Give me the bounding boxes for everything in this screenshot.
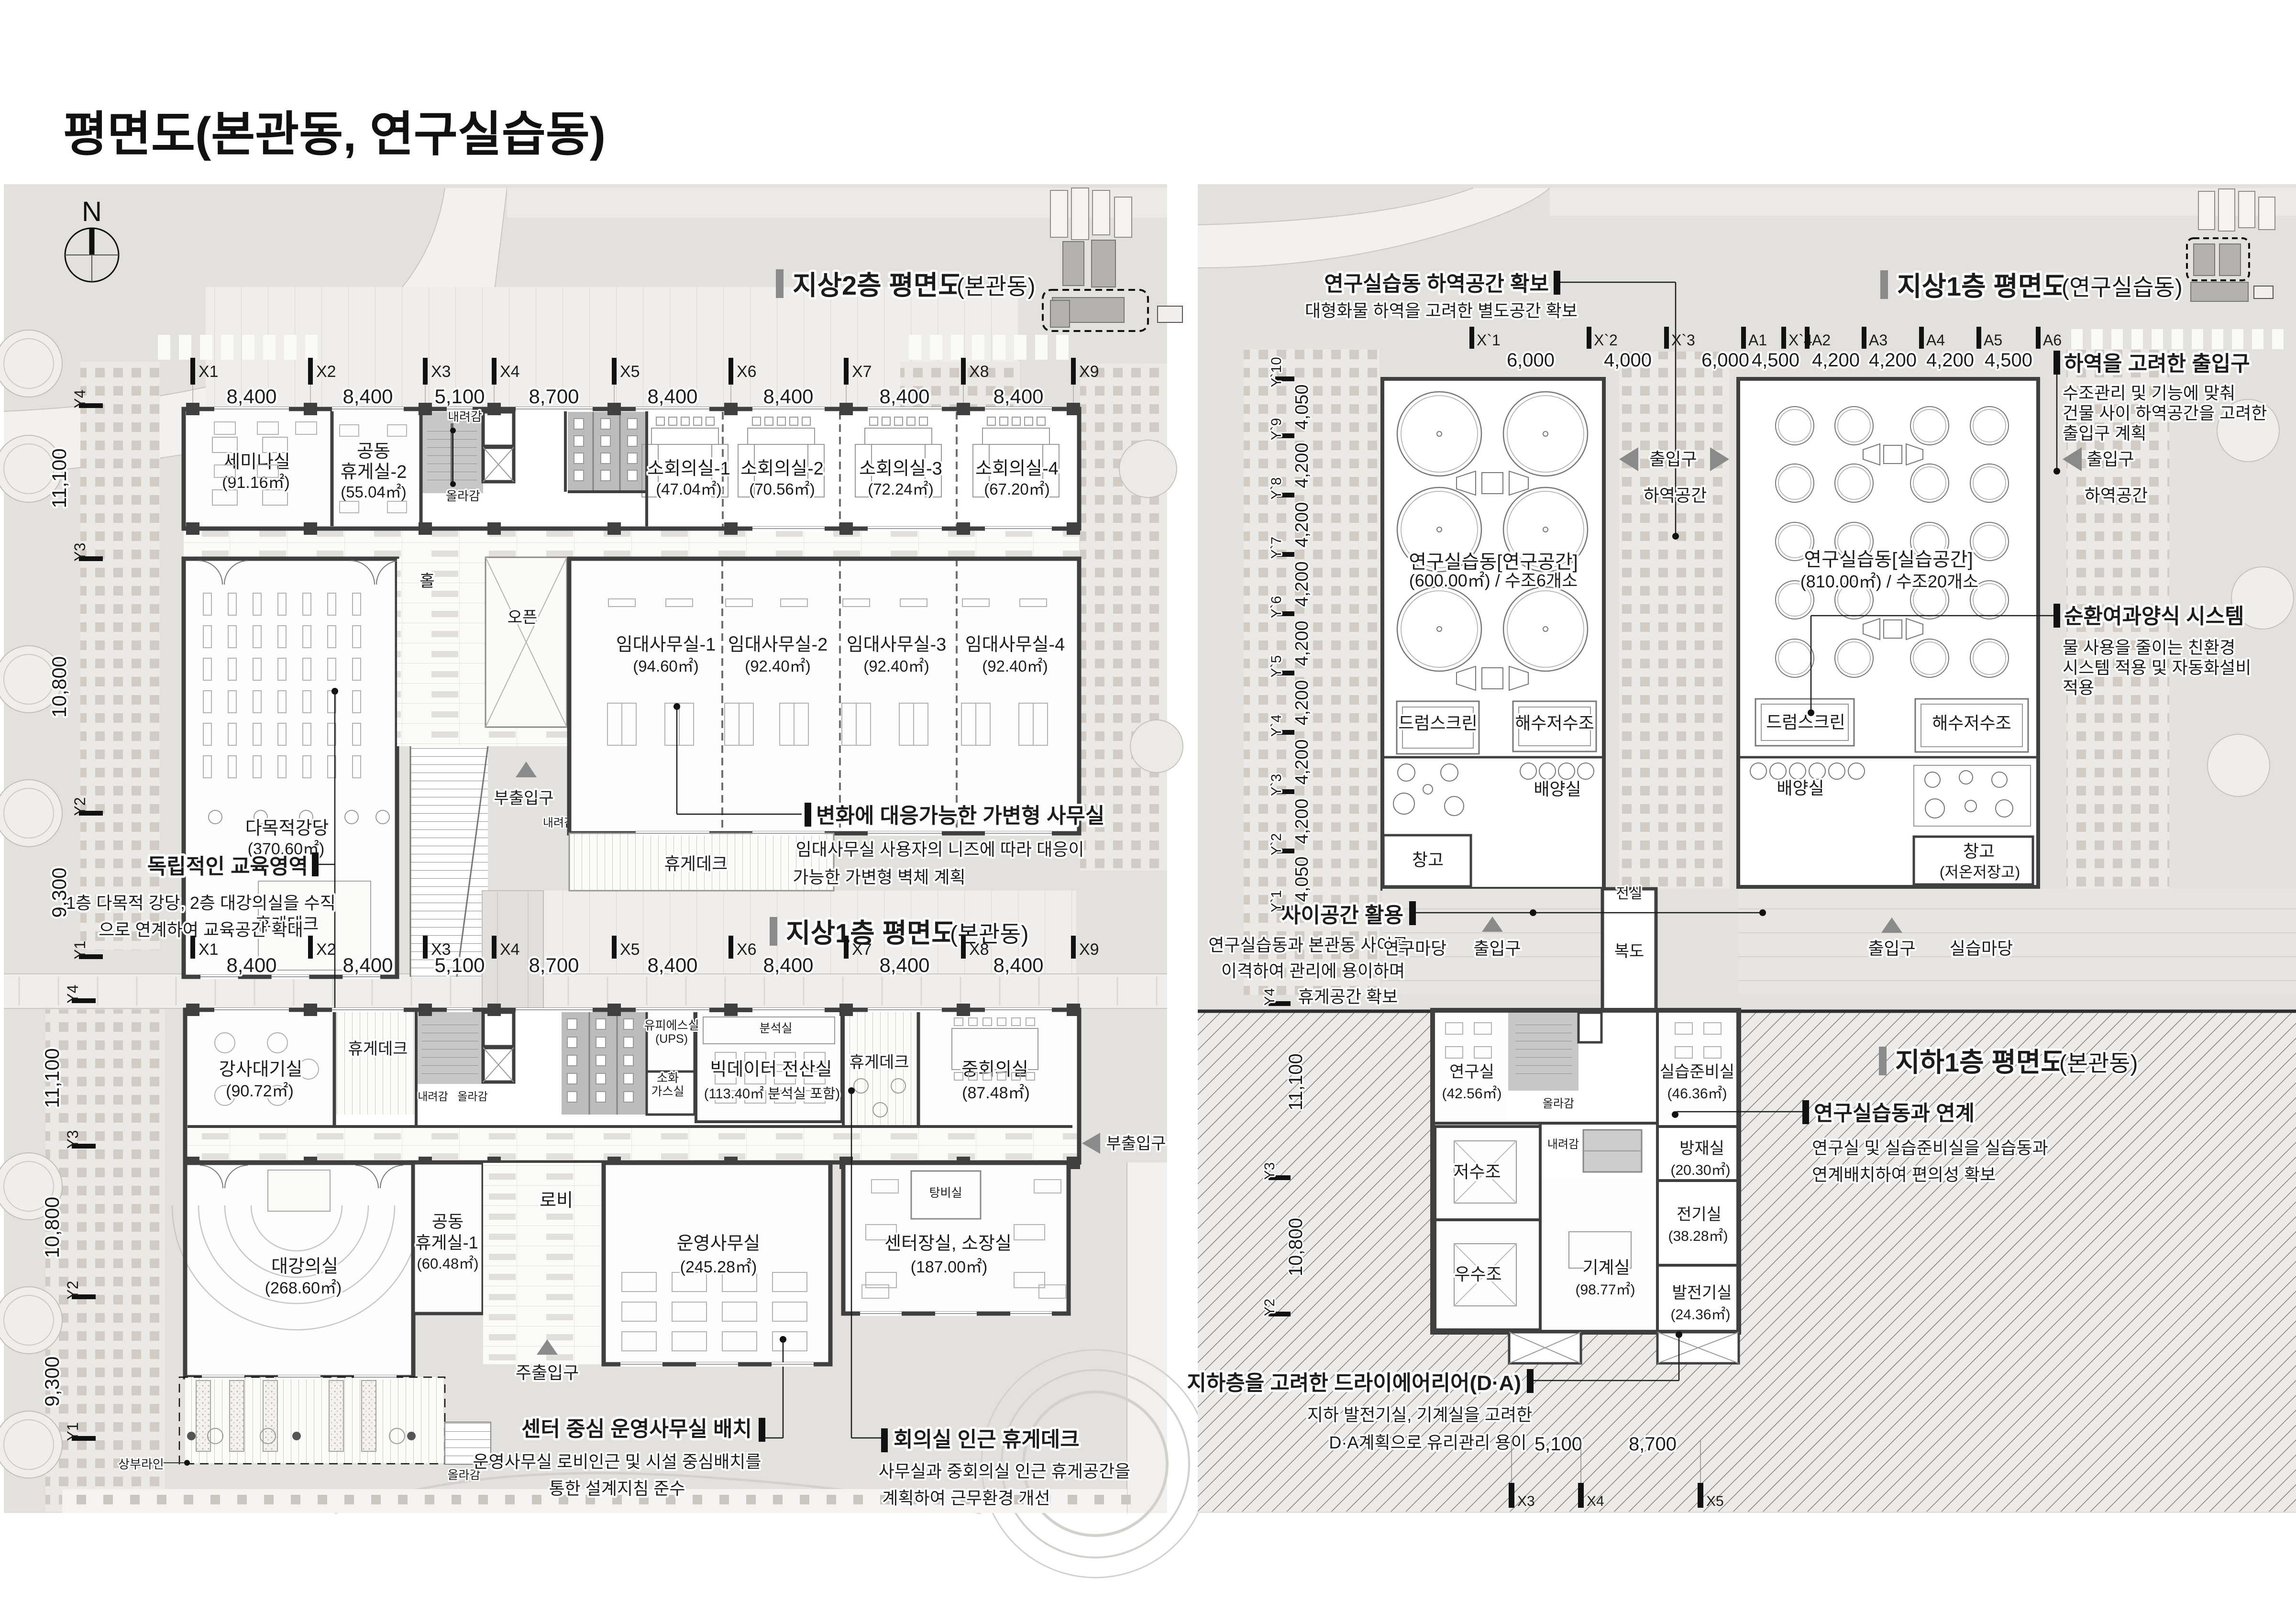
svg-text:건물 사이 하역공간을 고려한: 건물 사이 하역공간을 고려한 [2063, 403, 2267, 423]
svg-text:우수조: 우수조 [1454, 1264, 1501, 1284]
svg-text:(90.72㎡): (90.72㎡) [226, 1082, 294, 1100]
svg-text:빅데이터 전산실: 빅데이터 전산실 [710, 1060, 832, 1080]
svg-text:11,100: 11,100 [41, 1048, 63, 1108]
svg-text:배양실: 배양실 [1777, 778, 1824, 798]
svg-text:(본관동): (본관동) [2059, 1051, 2138, 1076]
svg-text:연구실: 연구실 [1449, 1063, 1494, 1081]
svg-text:X2: X2 [316, 940, 336, 959]
svg-text:대형화물 하역을 고려한 별도공간 확보: 대형화물 하역을 고려한 별도공간 확보 [1305, 301, 1578, 320]
svg-text:휴게데크: 휴게데크 [849, 1053, 909, 1072]
svg-text:Y`7: Y`7 [1269, 537, 1284, 559]
svg-text:(810.00㎡) / 수조20개소: (810.00㎡) / 수조20개소 [1800, 572, 1979, 591]
svg-text:4,200: 4,200 [1292, 561, 1312, 607]
svg-text:8,400: 8,400 [342, 954, 393, 976]
svg-text:운영사무실: 운영사무실 [677, 1234, 761, 1254]
svg-text:창고: 창고 [1963, 841, 1995, 861]
svg-text:계획하여 근무환경 개선: 계획하여 근무환경 개선 [882, 1488, 1050, 1508]
svg-text:X1: X1 [199, 363, 219, 381]
svg-text:A1: A1 [1748, 331, 1767, 349]
svg-text:복도: 복도 [1614, 942, 1645, 961]
svg-text:9,300: 9,300 [41, 1356, 63, 1406]
svg-text:8,400: 8,400 [647, 385, 697, 408]
svg-text:10,800: 10,800 [48, 656, 70, 718]
svg-text:(38.28㎡): (38.28㎡) [1668, 1228, 1728, 1244]
svg-text:연구실습동과 본관동 사이를: 연구실습동과 본관동 사이를 [1208, 935, 1408, 955]
svg-text:변화에 대응가능한 가변형 사무실: 변화에 대응가능한 가변형 사무실 [816, 804, 1104, 828]
svg-text:로비: 로비 [540, 1191, 573, 1211]
svg-text:연구실습동과 연계: 연구실습동과 연계 [1814, 1102, 1975, 1125]
svg-text:X`2: X`2 [1594, 331, 1618, 349]
svg-text:4,500: 4,500 [1985, 350, 2032, 371]
svg-text:저수조: 저수조 [1453, 1162, 1501, 1182]
svg-text:X2: X2 [316, 363, 336, 381]
svg-text:배양실: 배양실 [1534, 779, 1581, 799]
svg-text:4,200: 4,200 [1292, 442, 1312, 488]
svg-text:A6: A6 [2043, 331, 2062, 349]
svg-text:1층 다목적 강당, 2층 대강의실을 수직: 1층 다목적 강당, 2층 대강의실을 수직 [66, 893, 336, 913]
svg-text:출입구: 출입구 [1868, 939, 1915, 958]
svg-text:가능한 가변형 벽체 계획: 가능한 가변형 벽체 계획 [793, 867, 965, 887]
svg-text:수조관리 및 기능에 맞춰: 수조관리 및 기능에 맞춰 [2063, 383, 2235, 403]
svg-text:대강의실: 대강의실 [271, 1257, 338, 1277]
svg-text:출입구: 출입구 [1473, 939, 1521, 958]
svg-text:4,200: 4,200 [1292, 680, 1312, 725]
svg-text:Y`4: Y`4 [1269, 715, 1284, 737]
svg-text:상부라인: 상부라인 [118, 1457, 164, 1471]
svg-text:11,100: 11,100 [48, 448, 70, 508]
svg-text:휴게데크: 휴게데크 [348, 1040, 408, 1058]
svg-text:드럼스크린: 드럼스크린 [1398, 713, 1478, 733]
svg-text:Y1: Y1 [64, 1422, 81, 1441]
svg-text:임대사무실 사용자의 니즈에 따라 대응이: 임대사무실 사용자의 니즈에 따라 대응이 [795, 840, 1084, 859]
svg-text:사무실과 중회의실 인근 휴게공간을: 사무실과 중회의실 인근 휴게공간을 [879, 1461, 1131, 1481]
svg-text:임대사무실-4: 임대사무실-4 [965, 635, 1065, 655]
svg-text:X6: X6 [737, 940, 757, 959]
svg-text:순환여과양식 시스템: 순환여과양식 시스템 [2064, 605, 2244, 628]
svg-text:탕비실: 탕비실 [929, 1186, 962, 1200]
svg-text:4,500: 4,500 [1752, 350, 1799, 371]
svg-text:기계실: 기계실 [1582, 1258, 1630, 1277]
svg-text:지상1층 평면도: 지상1층 평면도 [1897, 271, 2067, 301]
svg-text:실습준비실: 실습준비실 [1660, 1063, 1734, 1081]
svg-text:지하1층 평면도: 지하1층 평면도 [1895, 1047, 2065, 1077]
svg-text:주출입구: 주출입구 [516, 1363, 579, 1382]
svg-text:휴게실-2: 휴게실-2 [341, 462, 407, 482]
svg-text:독립적인 교육영역: 독립적인 교육영역 [147, 855, 308, 878]
svg-text:연구마당: 연구마당 [1383, 939, 1446, 958]
svg-text:(70.56㎡): (70.56㎡) [749, 480, 815, 498]
svg-text:임대사무실-2: 임대사무실-2 [728, 635, 828, 655]
svg-text:(245.28㎡): (245.28㎡) [680, 1258, 757, 1276]
svg-text:하역공간: 하역공간 [1644, 486, 1707, 505]
svg-text:해수저수조: 해수저수조 [1515, 713, 1594, 733]
svg-text:부출입구: 부출입구 [1106, 1135, 1166, 1153]
svg-text:5,100: 5,100 [434, 385, 485, 408]
svg-text:X8: X8 [969, 940, 989, 959]
svg-text:(20.30㎡): (20.30㎡) [1670, 1162, 1730, 1178]
svg-text:(600.00㎡) / 수조6개소: (600.00㎡) / 수조6개소 [1409, 571, 1578, 590]
svg-text:4,050: 4,050 [1292, 384, 1312, 430]
svg-text:가스실: 가스실 [651, 1085, 684, 1098]
svg-text:8,700: 8,700 [1629, 1434, 1677, 1455]
svg-text:올라감: 올라감 [457, 1090, 487, 1103]
svg-text:하역공간: 하역공간 [2085, 486, 2148, 505]
svg-text:X`3: X`3 [1671, 331, 1695, 349]
svg-text:4,200: 4,200 [1292, 739, 1312, 784]
svg-text:(98.77㎡): (98.77㎡) [1575, 1282, 1635, 1298]
svg-text:X7: X7 [852, 940, 872, 959]
svg-text:10,800: 10,800 [1285, 1218, 1306, 1276]
svg-text:X1: X1 [199, 940, 219, 959]
svg-text:5,100: 5,100 [434, 954, 485, 976]
svg-text:(42.56㎡): (42.56㎡) [1442, 1086, 1501, 1102]
svg-text:내려감: 내려감 [1547, 1138, 1579, 1151]
svg-text:8,400: 8,400 [226, 385, 276, 408]
svg-text:시스템 적용 및 자동화설비: 시스템 적용 및 자동화설비 [2063, 658, 2251, 677]
svg-text:센터장실, 소장실: 센터장실, 소장실 [884, 1234, 1012, 1254]
svg-text:(92.40㎡): (92.40㎡) [745, 657, 811, 675]
svg-text:X4: X4 [500, 363, 520, 381]
svg-text:연구실습동 하역공간 확보: 연구실습동 하역공간 확보 [1324, 272, 1549, 296]
svg-text:(24.36㎡): (24.36㎡) [1670, 1307, 1730, 1323]
svg-text:Y4: Y4 [71, 389, 88, 408]
svg-text:하역을 고려한 출입구: 하역을 고려한 출입구 [2064, 352, 2250, 376]
svg-text:X5: X5 [620, 363, 640, 381]
svg-text:(94.60㎡): (94.60㎡) [633, 657, 699, 675]
svg-text:지상2층 평면도: 지상2층 평면도 [793, 270, 963, 300]
svg-text:4,050: 4,050 [1292, 856, 1312, 902]
svg-text:8,700: 8,700 [529, 954, 579, 976]
svg-text:다목적강당: 다목적강당 [245, 818, 329, 839]
svg-text:지하층을 고려한 드라이에어리어(D·A): 지하층을 고려한 드라이에어리어(D·A) [1187, 1371, 1521, 1395]
svg-text:출입구: 출입구 [2086, 449, 2134, 469]
svg-text:Y1: Y1 [71, 940, 88, 959]
svg-text:4,200: 4,200 [1292, 620, 1312, 666]
svg-text:(87.48㎡): (87.48㎡) [962, 1084, 1030, 1102]
svg-text:창고: 창고 [1412, 850, 1444, 870]
svg-text:(113.40㎡ 분석실 포함): (113.40㎡ 분석실 포함) [704, 1086, 840, 1102]
svg-text:N: N [82, 196, 102, 227]
svg-text:드럼스크린: 드럼스크린 [1766, 712, 1845, 732]
svg-text:적용: 적용 [2063, 678, 2094, 697]
svg-text:올라감: 올라감 [1543, 1097, 1574, 1110]
svg-text:연구실습동[연구공간]: 연구실습동[연구공간] [1409, 552, 1578, 573]
svg-text:연구실습동[실습공간]: 연구실습동[실습공간] [1804, 549, 1973, 570]
svg-text:부출입구: 부출입구 [494, 789, 553, 807]
svg-text:X5: X5 [1706, 1493, 1724, 1509]
svg-text:발전기실: 발전기실 [1672, 1284, 1732, 1302]
svg-text:강사대기실: 강사대기실 [219, 1060, 303, 1080]
svg-text:A2: A2 [1812, 331, 1831, 349]
svg-text:X9: X9 [1079, 940, 1099, 959]
svg-text:(저온저장고): (저온저장고) [1940, 863, 2020, 881]
svg-text:(55.04㎡): (55.04㎡) [341, 483, 407, 501]
svg-text:Y`10: Y`10 [1269, 357, 1284, 387]
svg-text:내려감: 내려감 [418, 1090, 448, 1103]
svg-text:(91.16㎡): (91.16㎡) [222, 474, 290, 492]
svg-text:해수저수조: 해수저수조 [1932, 713, 2011, 733]
svg-text:8,400: 8,400 [647, 954, 697, 976]
svg-text:올라감: 올라감 [446, 489, 480, 503]
svg-text:4,200: 4,200 [1292, 502, 1312, 547]
svg-text:6,000: 6,000 [1701, 350, 1749, 371]
svg-text:8,400: 8,400 [879, 385, 929, 408]
svg-text:(60.48㎡): (60.48㎡) [417, 1255, 478, 1272]
svg-text:사이공간 활용: 사이공간 활용 [1281, 904, 1403, 927]
svg-text:4,200: 4,200 [1812, 350, 1860, 371]
svg-text:물 사용을 줄이는 친환경: 물 사용을 줄이는 친환경 [2063, 638, 2235, 657]
svg-text:Y`2: Y`2 [1269, 833, 1284, 856]
svg-text:(268.60㎡): (268.60㎡) [265, 1279, 342, 1297]
svg-text:4,200: 4,200 [1926, 350, 1974, 371]
svg-text:(47.04㎡): (47.04㎡) [656, 480, 722, 498]
svg-text:공동: 공동 [432, 1212, 464, 1231]
svg-text:5,100: 5,100 [1534, 1434, 1582, 1455]
svg-text:8,400: 8,400 [993, 954, 1043, 976]
svg-text:Y2: Y2 [64, 1281, 81, 1299]
svg-text:Y3: Y3 [64, 1130, 81, 1149]
svg-text:Y2: Y2 [1262, 1299, 1278, 1316]
svg-text:소회의실-3: 소회의실-3 [859, 459, 942, 479]
svg-text:8,400: 8,400 [342, 385, 393, 408]
svg-text:X4: X4 [1587, 1493, 1604, 1509]
svg-text:중회의실: 중회의실 [961, 1060, 1028, 1080]
svg-text:Y`8: Y`8 [1269, 477, 1284, 500]
svg-text:실습마당: 실습마당 [1950, 939, 2013, 958]
svg-text:A3: A3 [1869, 331, 1888, 349]
svg-text:회의실 인근 휴게데크: 회의실 인근 휴게데크 [894, 1428, 1080, 1451]
svg-text:X5: X5 [620, 940, 640, 959]
svg-text:A4: A4 [1926, 331, 1945, 349]
svg-text:평면도(본관동, 연구실습동): 평면도(본관동, 연구실습동) [63, 108, 606, 161]
svg-text:(연구실습동): (연구실습동) [2062, 275, 2183, 300]
svg-text:센터 중심 운영사무실 배치: 센터 중심 운영사무실 배치 [521, 1417, 752, 1441]
svg-text:통한 설계지침 준수: 통한 설계지침 준수 [549, 1479, 685, 1498]
svg-text:소회의실-2: 소회의실-2 [740, 459, 824, 479]
svg-text:임대사무실-3: 임대사무실-3 [847, 635, 947, 655]
svg-text:이격하여 관리에 용이하며: 이격하여 관리에 용이하며 [1221, 961, 1405, 981]
svg-text:8,400: 8,400 [763, 954, 813, 976]
svg-text:휴게공간 확보: 휴게공간 확보 [1298, 987, 1398, 1006]
svg-text:8,400: 8,400 [879, 954, 929, 976]
svg-text:공동: 공동 [357, 442, 390, 462]
svg-text:8,400: 8,400 [763, 385, 813, 408]
svg-text:8,400: 8,400 [226, 954, 276, 976]
svg-text:소화: 소화 [657, 1072, 679, 1085]
svg-text:으로 연계하여 교육공간 확대: 으로 연계하여 교육공간 확대 [99, 920, 303, 939]
svg-text:X7: X7 [852, 363, 872, 381]
svg-text:(72.24㎡): (72.24㎡) [868, 480, 934, 498]
svg-text:D·A계획으로 유리관리 용이: D·A계획으로 유리관리 용이 [1329, 1433, 1526, 1452]
svg-text:Y`6: Y`6 [1269, 596, 1284, 619]
svg-text:휴게실-1: 휴게실-1 [415, 1233, 478, 1252]
svg-text:분석실: 분석실 [759, 1022, 792, 1035]
svg-text:운영사무실 로비인근 및 시설 중심배치를: 운영사무실 로비인근 및 시설 중심배치를 [473, 1452, 761, 1471]
svg-text:(본관동): (본관동) [957, 274, 1035, 299]
svg-text:8,700: 8,700 [529, 385, 579, 408]
svg-text:Y`3: Y`3 [1269, 774, 1284, 796]
svg-text:(187.00㎡): (187.00㎡) [911, 1258, 988, 1276]
svg-text:11,100: 11,100 [1285, 1053, 1306, 1110]
svg-text:Y3: Y3 [71, 542, 88, 561]
svg-text:X`1: X`1 [1477, 331, 1501, 349]
svg-text:Y`5: Y`5 [1269, 655, 1284, 678]
svg-text:(92.40㎡): (92.40㎡) [982, 657, 1048, 675]
svg-text:Y`9: Y`9 [1269, 418, 1284, 441]
svg-text:전기실: 전기실 [1677, 1205, 1722, 1224]
svg-text:4,000: 4,000 [1604, 350, 1652, 371]
svg-text:Y3: Y3 [1262, 1162, 1278, 1180]
svg-text:Y4: Y4 [64, 984, 81, 1003]
svg-text:연구실 및 실습준비실을 실습동과: 연구실 및 실습준비실을 실습동과 [1812, 1138, 2048, 1158]
svg-text:방재실: 방재실 [1679, 1139, 1724, 1158]
svg-text:(67.20㎡): (67.20㎡) [984, 480, 1050, 498]
svg-text:4,200: 4,200 [1869, 350, 1917, 371]
svg-text:Y4: Y4 [1262, 988, 1278, 1006]
svg-text:지하 발전기실, 기계실을 고려한: 지하 발전기실, 기계실을 고려한 [1307, 1405, 1533, 1425]
svg-text:연계배치하여 편의성 확보: 연계배치하여 편의성 확보 [1812, 1165, 1996, 1184]
svg-text:A5: A5 [1984, 331, 2002, 349]
svg-text:출입구: 출입구 [1649, 449, 1697, 469]
svg-text:4,200: 4,200 [1292, 798, 1312, 844]
svg-text:6,000: 6,000 [1507, 350, 1555, 371]
svg-text:출입구 계획: 출입구 계획 [2063, 423, 2147, 443]
svg-text:X3: X3 [1517, 1493, 1535, 1509]
svg-text:유피에스실: 유피에스실 [644, 1019, 699, 1032]
svg-text:(UPS): (UPS) [655, 1032, 688, 1046]
svg-text:휴게데크: 휴게데크 [664, 854, 728, 873]
svg-text:10,800: 10,800 [41, 1197, 63, 1258]
svg-text:홀: 홀 [419, 572, 434, 590]
svg-text:소회의실-4: 소회의실-4 [975, 459, 1059, 479]
svg-text:X4: X4 [500, 940, 520, 959]
svg-text:X6: X6 [737, 363, 757, 381]
svg-text:소회의실-1: 소회의실-1 [647, 459, 730, 479]
svg-text:X3: X3 [431, 363, 451, 381]
svg-text:X8: X8 [969, 363, 989, 381]
svg-text:(46.36㎡): (46.36㎡) [1667, 1086, 1727, 1102]
svg-text:Y2: Y2 [71, 797, 88, 816]
svg-text:오픈: 오픈 [508, 608, 538, 627]
svg-text:임대사무실-1: 임대사무실-1 [616, 635, 716, 655]
svg-text:X9: X9 [1079, 363, 1099, 381]
svg-text:(92.40㎡): (92.40㎡) [863, 657, 929, 675]
svg-text:전실: 전실 [1616, 886, 1642, 902]
svg-text:8,400: 8,400 [993, 385, 1043, 408]
svg-text:내려감: 내려감 [448, 409, 482, 424]
